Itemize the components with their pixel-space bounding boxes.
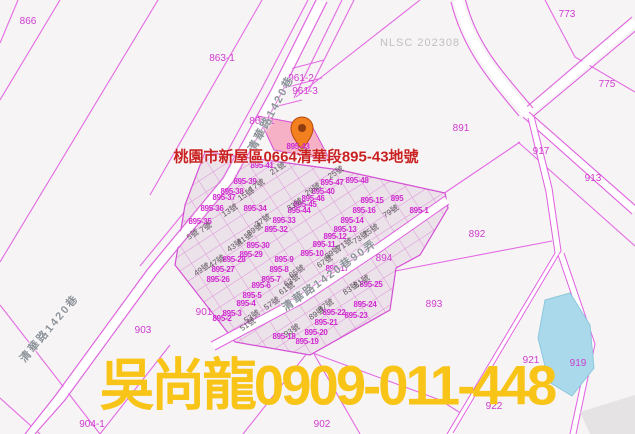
cadastral-map-viewport[interactable]: 866863-1961-2961-3861-177377589191791389… (0, 0, 635, 434)
source-watermark: NLSC 202308 (380, 37, 460, 49)
parcel-annotation: 桃園市新屋區0664清華段895-43地號 (173, 146, 418, 167)
agent-watermark: 吳尚龍0909-011-448 (100, 341, 555, 422)
